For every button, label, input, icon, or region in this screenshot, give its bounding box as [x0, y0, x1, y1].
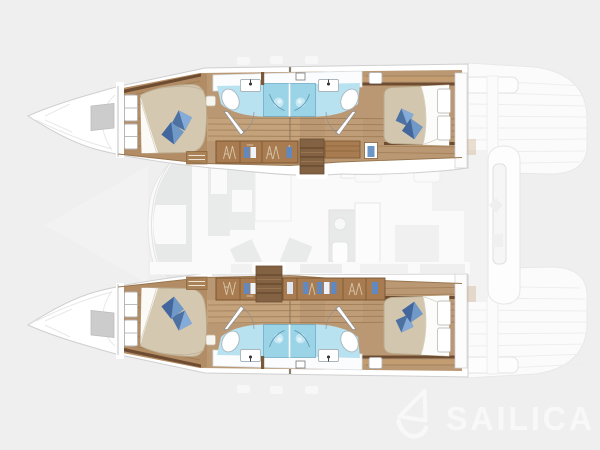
svg-text:SAILICA: SAILICA — [446, 400, 595, 437]
